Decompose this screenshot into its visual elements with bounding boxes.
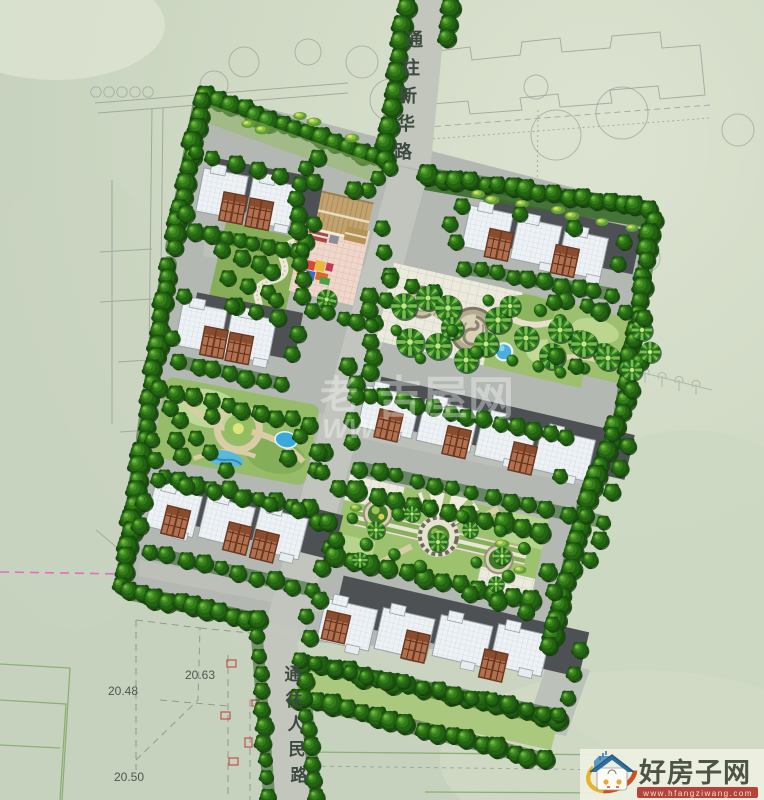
svg-text:民: 民 xyxy=(289,740,306,759)
svg-text:20.48: 20.48 xyxy=(108,684,138,698)
svg-text:WW: WW xyxy=(322,413,377,444)
svg-text:人: 人 xyxy=(288,715,306,734)
svg-text:路: 路 xyxy=(394,141,413,162)
svg-text:往: 往 xyxy=(286,690,303,710)
svg-text:老: 老 xyxy=(320,375,358,417)
svg-text:新: 新 xyxy=(399,85,417,106)
svg-text:路: 路 xyxy=(291,765,309,785)
svg-text:20.63: 20.63 xyxy=(185,668,215,682)
svg-text:通: 通 xyxy=(405,30,423,50)
svg-text:往: 往 xyxy=(402,57,420,78)
svg-text:通: 通 xyxy=(285,665,302,684)
svg-text:www.hfangziwang.com: www.hfangziwang.com xyxy=(642,789,753,798)
svg-text:好房子网: 好房子网 xyxy=(638,758,751,788)
svg-text:吉屋网: 吉屋网 xyxy=(376,372,514,424)
svg-text:20.50: 20.50 xyxy=(114,770,144,784)
svg-text:华: 华 xyxy=(397,113,415,134)
